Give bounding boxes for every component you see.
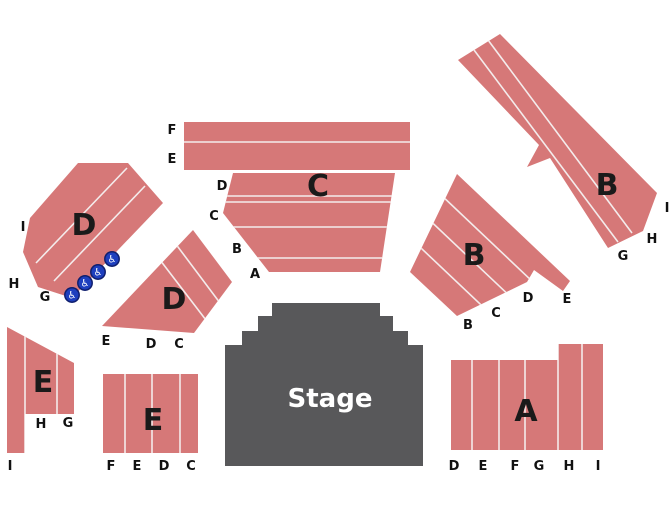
section-c-row-label-e: E bbox=[168, 152, 177, 167]
section-d-lower-label: D bbox=[162, 282, 187, 317]
section-c-row-label-b: B bbox=[232, 242, 242, 257]
wheelchair-icon[interactable]: ♿ bbox=[78, 276, 92, 290]
wheelchair-glyph: ♿ bbox=[68, 291, 77, 302]
section-d-lower-row-label-e: E bbox=[102, 334, 111, 349]
stage-label: Stage bbox=[288, 384, 373, 414]
wheelchair-icon[interactable]: ♿ bbox=[65, 288, 79, 302]
section-a-row-label-e: E bbox=[479, 459, 488, 474]
section-e-left: E H G I bbox=[7, 327, 74, 474]
section-a-row-label-d: D bbox=[449, 459, 460, 474]
section-b-mid: B B C D E bbox=[403, 174, 571, 338]
section-e-left-row-label-i: I bbox=[8, 459, 13, 474]
section-a-row-label-h: H bbox=[564, 459, 575, 474]
section-b-mid-row-label-c: C bbox=[491, 306, 501, 321]
section-c-row-label-c: C bbox=[209, 209, 219, 224]
section-e-left-label: E bbox=[33, 365, 54, 400]
section-d-upper-row-label-h: H bbox=[9, 277, 20, 292]
section-e-left-row-label-h: H bbox=[36, 417, 47, 432]
section-b-mid-row-label-e: E bbox=[563, 292, 572, 307]
wheelchair-glyph: ♿ bbox=[81, 279, 90, 290]
section-d-upper-label: D bbox=[72, 208, 97, 243]
section-b-diag-row-label-i: I bbox=[665, 201, 670, 216]
section-a-row-label-i: I bbox=[596, 459, 601, 474]
wheelchair-icon[interactable]: ♿ bbox=[91, 265, 105, 279]
section-a-label: A bbox=[514, 394, 538, 429]
section-c-row-label-a: A bbox=[250, 267, 260, 282]
section-e-bottom-row-label-d: D bbox=[159, 459, 170, 474]
section-c-back-block[interactable] bbox=[184, 122, 410, 170]
wheelchair-glyph: ♿ bbox=[94, 268, 103, 279]
section-e-bottom-row-label-f: F bbox=[107, 459, 116, 474]
section-a-row-label-g: G bbox=[534, 459, 545, 474]
section-b-diag-label: B bbox=[596, 168, 619, 203]
section-e-bottom-row-label-e: E bbox=[133, 459, 142, 474]
section-b-diag-row-label-g: G bbox=[618, 249, 629, 264]
section-e-left-row-label-g: G bbox=[63, 416, 74, 431]
wheelchair-glyph: ♿ bbox=[108, 255, 117, 266]
stage: Stage bbox=[225, 303, 423, 466]
wheelchair-icon[interactable]: ♿ bbox=[105, 252, 119, 266]
section-d-lower-row-label-d: D bbox=[146, 337, 157, 352]
section-a-row-label-f: F bbox=[511, 459, 520, 474]
section-b-mid-label: B bbox=[463, 238, 486, 273]
seating-map-svg: D I H G ♿ ♿ ♿ ♿ bbox=[0, 0, 672, 510]
section-c-row-label-f: F bbox=[168, 123, 177, 138]
section-d-lower-row-label-c: C bbox=[174, 337, 184, 352]
section-b-diag-row-label-h: H bbox=[647, 232, 658, 247]
section-c-label: C bbox=[307, 169, 329, 204]
section-b-mid-shape[interactable] bbox=[410, 174, 570, 316]
seating-map: D I H G ♿ ♿ ♿ ♿ bbox=[0, 0, 672, 510]
section-d-upper-row-label-g: G bbox=[40, 290, 51, 305]
section-a: A D E F G H I bbox=[449, 344, 603, 474]
section-d-upper-row-label-i: I bbox=[21, 220, 26, 235]
section-d-lower: D E D C bbox=[102, 230, 232, 352]
section-b-mid-row-label-d: D bbox=[523, 291, 534, 306]
section-c-row-label-d: D bbox=[217, 179, 228, 194]
section-e-bottom-label: E bbox=[143, 403, 164, 438]
section-e-bottom: E F E D C bbox=[103, 374, 198, 474]
section-d-upper: D I H G ♿ ♿ ♿ ♿ bbox=[9, 163, 163, 305]
section-e-bottom-row-label-c: C bbox=[186, 459, 196, 474]
section-b-mid-row-label-b: B bbox=[463, 318, 473, 333]
